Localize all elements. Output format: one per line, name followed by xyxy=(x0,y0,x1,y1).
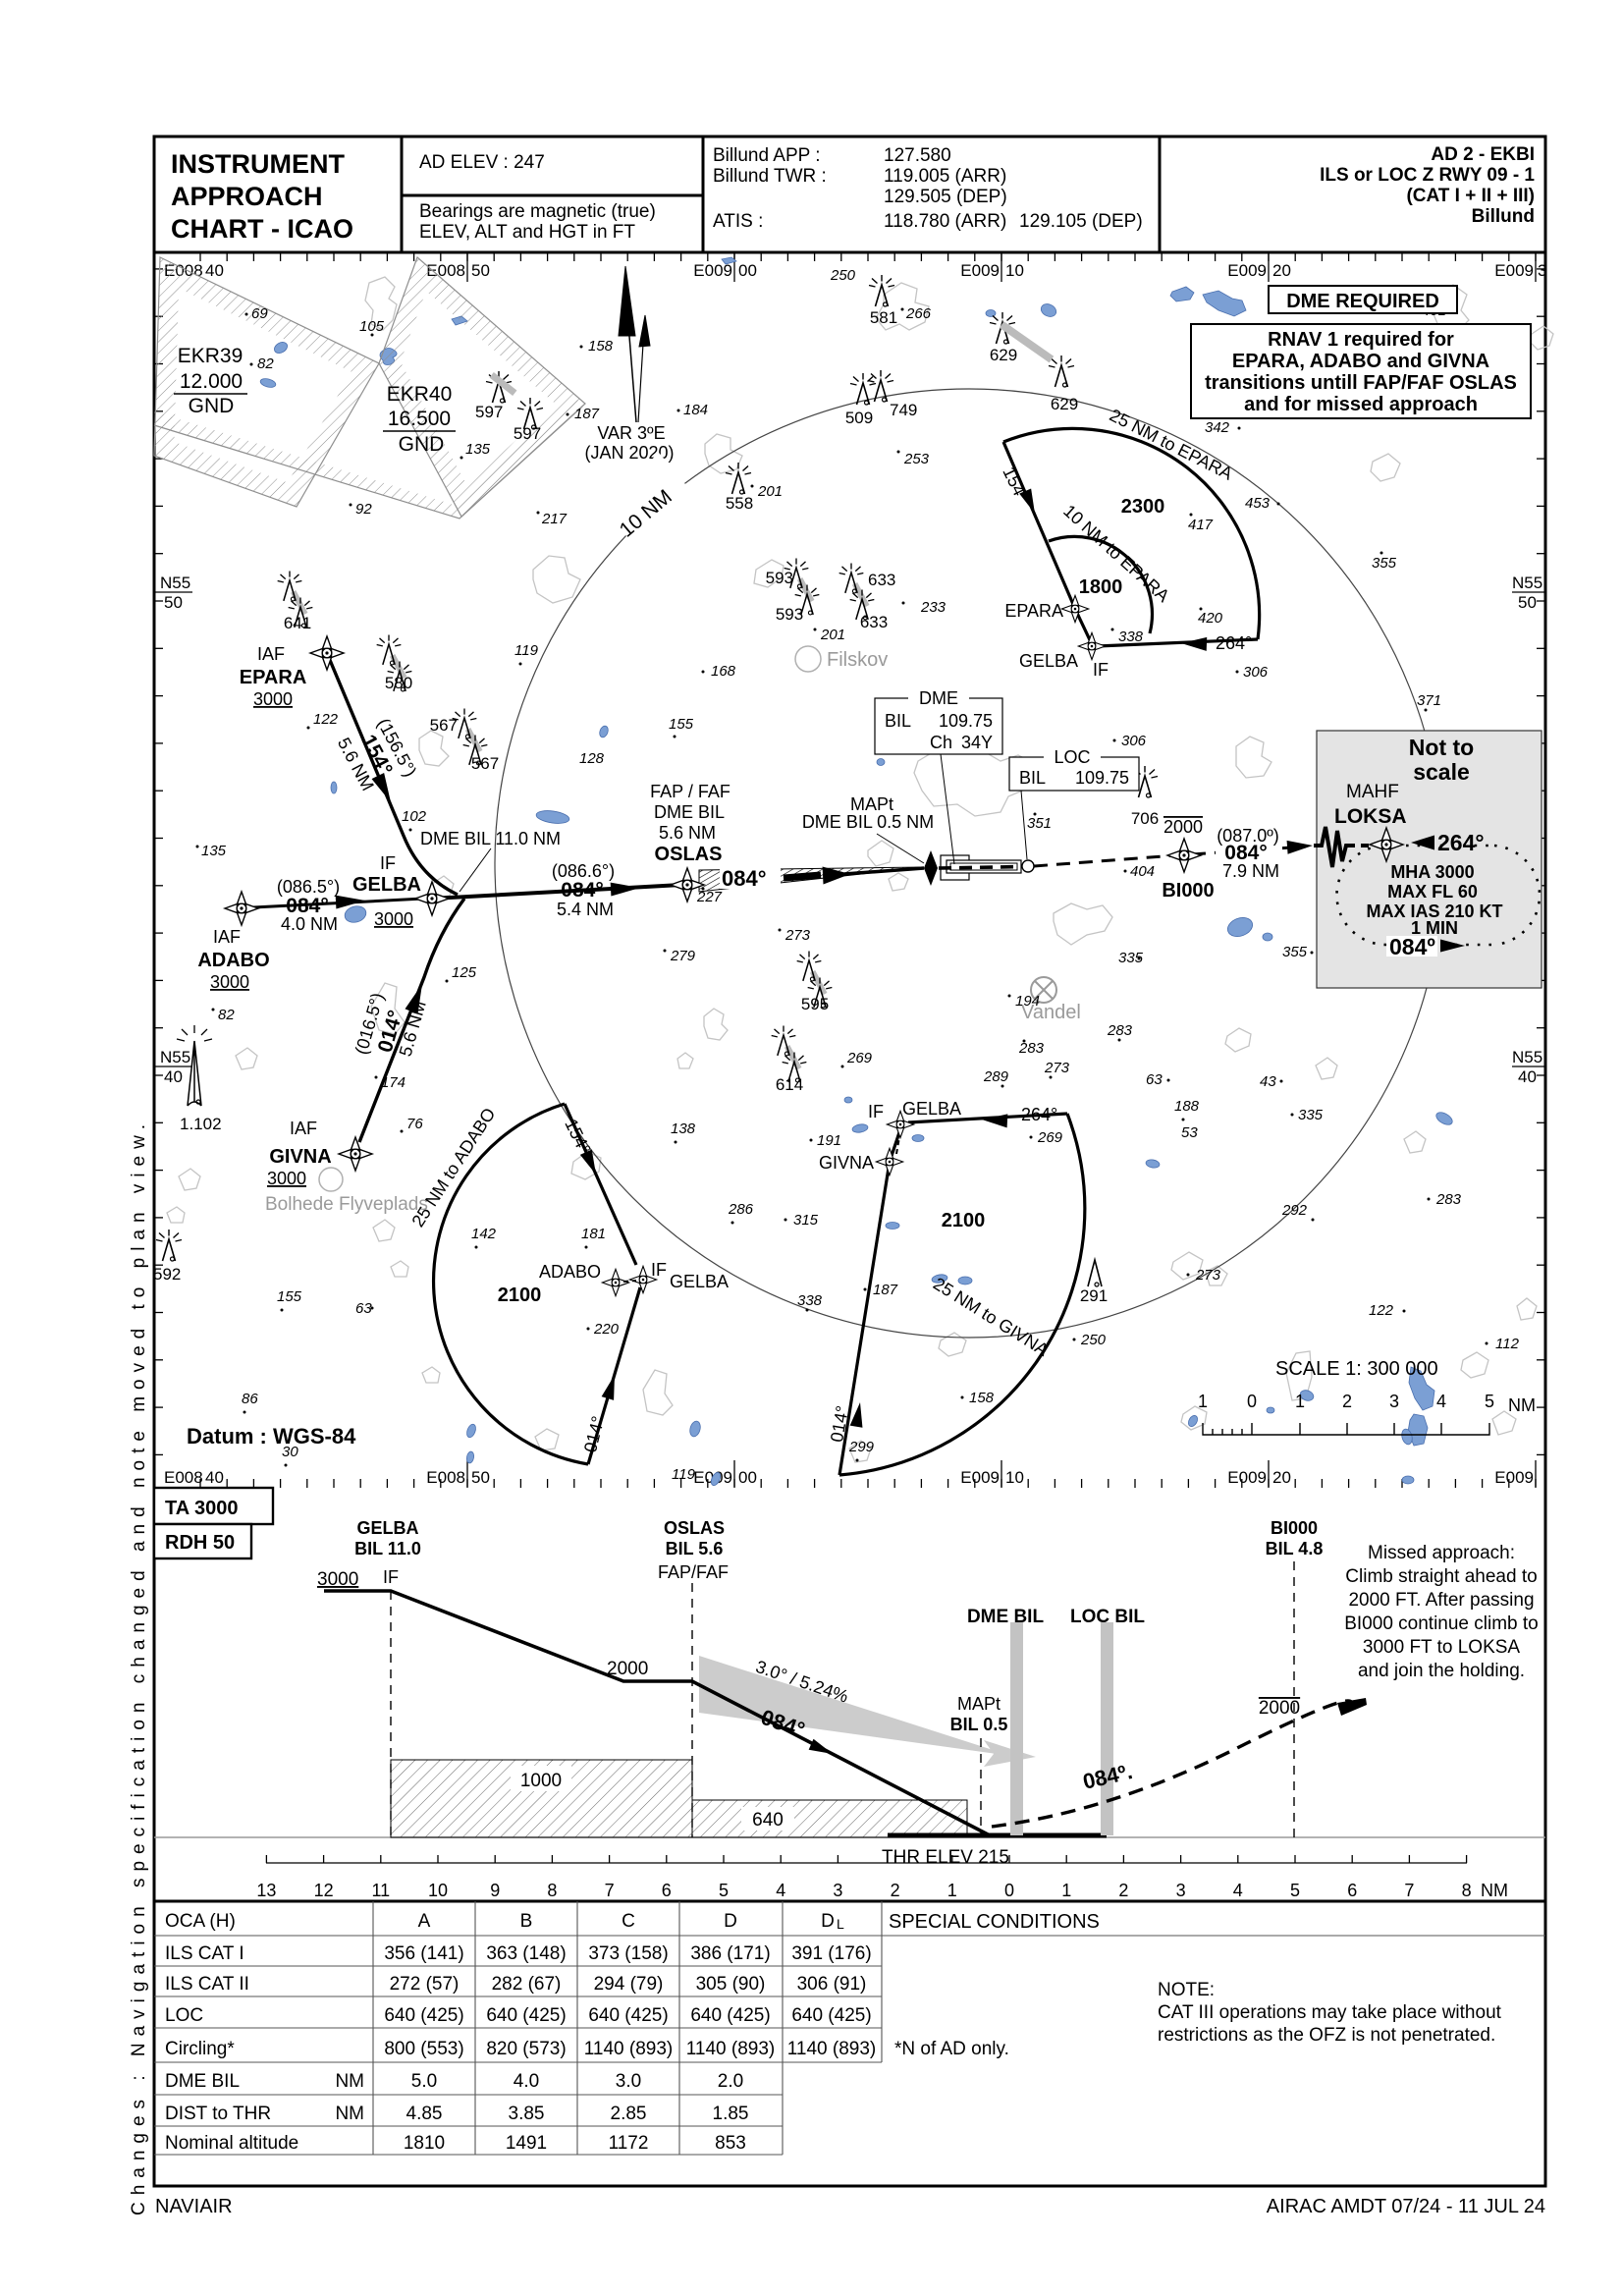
svg-text:69: 69 xyxy=(251,305,268,322)
svg-text:11: 11 xyxy=(371,1881,390,1900)
svg-text:2000: 2000 xyxy=(1163,817,1203,837)
svg-text:N55: N55 xyxy=(1512,574,1542,592)
svg-text:853: 853 xyxy=(715,2133,746,2154)
svg-text:43: 43 xyxy=(1260,1073,1276,1090)
svg-text:NM: NM xyxy=(1508,1395,1536,1415)
svg-text:158: 158 xyxy=(588,338,614,355)
svg-text:273: 273 xyxy=(1195,1267,1221,1284)
svg-text:291: 291 xyxy=(1080,1286,1108,1305)
svg-text:E009: E009 xyxy=(960,1468,1000,1487)
svg-text:OSLAS: OSLAS xyxy=(655,844,723,865)
svg-text:1140 (893): 1140 (893) xyxy=(584,2039,674,2059)
svg-text:IF: IF xyxy=(1093,660,1109,680)
svg-text:BIL: BIL xyxy=(1019,768,1046,788)
svg-text:3000: 3000 xyxy=(253,689,293,709)
svg-text:OCA (H): OCA (H) xyxy=(165,1911,236,1932)
svg-text:DME BIL 0.5 NM: DME BIL 0.5 NM xyxy=(802,812,934,832)
svg-text:4: 4 xyxy=(776,1881,785,1900)
svg-text:084°: 084° xyxy=(561,879,603,902)
svg-text:420: 420 xyxy=(1198,610,1223,627)
svg-text:581: 581 xyxy=(870,308,897,327)
svg-text:Climb straight ahead to: Climb straight ahead to xyxy=(1345,1566,1537,1587)
svg-text:109.75: 109.75 xyxy=(1075,768,1129,788)
svg-text:292: 292 xyxy=(1281,1202,1308,1219)
svg-text:283: 283 xyxy=(1018,1040,1045,1057)
svg-text:6: 6 xyxy=(1347,1881,1357,1900)
svg-text:1: 1 xyxy=(1061,1881,1071,1900)
svg-text:10: 10 xyxy=(1005,1468,1024,1487)
svg-text:282 (67): 282 (67) xyxy=(492,1974,562,1995)
svg-text:338: 338 xyxy=(1118,629,1144,645)
svg-text:E009: E009 xyxy=(1227,261,1267,280)
svg-text:GELBA: GELBA xyxy=(670,1272,729,1291)
svg-text:142: 142 xyxy=(471,1226,497,1242)
svg-text:306: 306 xyxy=(1121,733,1147,749)
svg-text:GND: GND xyxy=(189,395,235,417)
svg-text:1.102: 1.102 xyxy=(180,1115,222,1133)
svg-text:0: 0 xyxy=(1247,1392,1257,1411)
svg-text:6: 6 xyxy=(662,1881,672,1900)
svg-text:112: 112 xyxy=(1495,1336,1520,1352)
svg-text:scale: scale xyxy=(1413,759,1470,785)
svg-text:315: 315 xyxy=(793,1212,819,1229)
svg-text:286: 286 xyxy=(728,1201,754,1218)
svg-text:Billund APP :: Billund APP : xyxy=(713,145,821,166)
svg-text:135: 135 xyxy=(465,441,491,458)
svg-text:1: 1 xyxy=(1198,1392,1208,1411)
svg-text:10: 10 xyxy=(1005,261,1024,280)
svg-text:LOC: LOC xyxy=(165,2005,203,2026)
svg-text:118.780 (ARR): 118.780 (ARR) xyxy=(884,211,1006,232)
svg-text:355: 355 xyxy=(1372,555,1397,572)
svg-text:800 (553): 800 (553) xyxy=(384,2039,463,2059)
svg-text:3: 3 xyxy=(1538,261,1546,280)
svg-text:BIL 0.5: BIL 0.5 xyxy=(950,1715,1008,1734)
svg-text:ILS CAT II: ILS CAT II xyxy=(165,1974,249,1995)
svg-text:THR ELEV 215: THR ELEV 215 xyxy=(882,1847,1009,1868)
svg-text:306 (91): 306 (91) xyxy=(797,1974,867,1995)
svg-text:1.85: 1.85 xyxy=(713,2104,749,2124)
svg-text:269: 269 xyxy=(1037,1129,1063,1146)
svg-text:5.4 NM: 5.4 NM xyxy=(557,900,614,919)
svg-text:APPROACH: APPROACH xyxy=(171,182,323,211)
svg-text:084°: 084° xyxy=(722,866,767,891)
svg-text:86: 86 xyxy=(242,1391,258,1407)
svg-text:102: 102 xyxy=(402,808,427,825)
svg-text:109.75: 109.75 xyxy=(939,711,993,731)
svg-text:264°: 264° xyxy=(1021,1105,1057,1124)
svg-text:BIL: BIL xyxy=(885,711,911,731)
svg-text:40: 40 xyxy=(1518,1067,1537,1086)
svg-text:50: 50 xyxy=(1518,593,1537,612)
svg-text:Datum : WGS-84: Datum : WGS-84 xyxy=(187,1424,356,1449)
svg-text:1800: 1800 xyxy=(1079,576,1123,598)
svg-text:1172: 1172 xyxy=(609,2133,649,2154)
svg-text:2: 2 xyxy=(891,1881,900,1900)
svg-text:597: 597 xyxy=(514,424,541,443)
svg-text:L: L xyxy=(837,1916,844,1932)
svg-text:FAP/FAF: FAP/FAF xyxy=(658,1562,729,1582)
svg-text:614: 614 xyxy=(776,1075,803,1094)
svg-text:640 (425): 640 (425) xyxy=(690,2005,770,2026)
svg-text:264°: 264° xyxy=(1437,830,1485,855)
svg-text:158: 158 xyxy=(969,1390,995,1406)
svg-text:50: 50 xyxy=(471,1468,490,1487)
svg-text:E008: E008 xyxy=(426,1468,465,1487)
svg-text:335: 335 xyxy=(1298,1107,1324,1123)
svg-text:50: 50 xyxy=(164,593,183,612)
svg-text:3.85: 3.85 xyxy=(509,2104,545,2124)
svg-text:GIVNA: GIVNA xyxy=(819,1153,874,1173)
svg-text:122: 122 xyxy=(313,711,339,728)
svg-text:34Y: 34Y xyxy=(961,733,993,752)
svg-text:SPECIAL CONDITIONS: SPECIAL CONDITIONS xyxy=(889,1911,1100,1933)
svg-text:LOKSA: LOKSA xyxy=(1334,805,1407,828)
svg-text:ADABO: ADABO xyxy=(197,950,269,971)
svg-text:279: 279 xyxy=(670,948,696,964)
svg-text:BI000: BI000 xyxy=(1271,1518,1318,1538)
svg-text:9: 9 xyxy=(490,1881,500,1900)
svg-text:12.000: 12.000 xyxy=(180,370,243,393)
svg-text:217: 217 xyxy=(541,511,568,527)
svg-text:13: 13 xyxy=(256,1881,276,1900)
svg-text:ILS CAT I: ILS CAT I xyxy=(165,1943,244,1964)
svg-text:GND: GND xyxy=(399,433,445,456)
svg-text:187: 187 xyxy=(574,406,600,422)
svg-text:181: 181 xyxy=(581,1226,606,1242)
svg-text:640 (425): 640 (425) xyxy=(588,2005,668,2026)
svg-text:Filskov: Filskov xyxy=(827,649,888,671)
svg-text:289: 289 xyxy=(983,1068,1009,1085)
svg-text:8: 8 xyxy=(1462,1881,1472,1900)
svg-text:Not to: Not to xyxy=(1409,735,1474,760)
svg-text:595: 595 xyxy=(801,995,829,1013)
svg-text:273: 273 xyxy=(1044,1060,1070,1076)
svg-text:0: 0 xyxy=(1004,1881,1014,1900)
svg-text:2000 FT. After passing: 2000 FT. After passing xyxy=(1348,1590,1534,1611)
svg-text:453: 453 xyxy=(1245,495,1271,512)
svg-text:125: 125 xyxy=(452,964,477,981)
svg-text:DME REQUIRED: DME REQUIRED xyxy=(1286,291,1439,312)
svg-text:629: 629 xyxy=(1051,395,1078,413)
svg-text:DME BIL: DME BIL xyxy=(654,802,725,822)
svg-text:20: 20 xyxy=(1272,261,1291,280)
svg-text:373 (158): 373 (158) xyxy=(588,1943,668,1964)
svg-text:233: 233 xyxy=(920,599,947,616)
svg-text:2100: 2100 xyxy=(498,1285,542,1306)
svg-text:CAT III operations may take pl: CAT III operations may take place withou… xyxy=(1158,2002,1502,2023)
svg-text:IAF: IAF xyxy=(257,644,285,664)
svg-text:E009: E009 xyxy=(1494,261,1534,280)
svg-text:LOC: LOC xyxy=(1054,747,1090,767)
svg-text:273: 273 xyxy=(784,927,811,944)
svg-text:1000: 1000 xyxy=(520,1771,562,1791)
svg-text:transitions untill FAP/FAF OSL: transitions untill FAP/FAF OSLAS xyxy=(1205,372,1517,394)
svg-text:TA 3000: TA 3000 xyxy=(165,1498,238,1519)
svg-text:40: 40 xyxy=(205,1468,224,1487)
svg-text:BIL 4.8: BIL 4.8 xyxy=(1266,1539,1324,1558)
svg-text:IF: IF xyxy=(383,1567,399,1587)
svg-text:355: 355 xyxy=(1282,944,1308,960)
svg-text:417: 417 xyxy=(1188,517,1214,533)
svg-text:191: 191 xyxy=(817,1132,841,1149)
svg-text:N55: N55 xyxy=(160,574,190,592)
svg-text:305 (90): 305 (90) xyxy=(696,1974,766,1995)
svg-text:OSLAS: OSLAS xyxy=(664,1518,725,1538)
svg-text:BIL 5.6: BIL 5.6 xyxy=(666,1539,724,1558)
svg-text:SCALE 1: 300 000: SCALE 1: 300 000 xyxy=(1275,1358,1438,1380)
svg-text:Bearings are magnetic (true): Bearings are magnetic (true) xyxy=(419,201,656,222)
svg-text:269: 269 xyxy=(846,1050,873,1066)
svg-text:NM: NM xyxy=(335,2071,364,2092)
svg-text:640 (425): 640 (425) xyxy=(486,2005,566,2026)
svg-text:(086.6°): (086.6°) xyxy=(552,861,615,881)
svg-text:168: 168 xyxy=(711,663,736,680)
svg-text:509: 509 xyxy=(845,409,873,427)
svg-text:E009: E009 xyxy=(960,261,1000,280)
svg-text:1: 1 xyxy=(1295,1392,1305,1411)
svg-text:404: 404 xyxy=(1130,863,1155,880)
svg-text:184: 184 xyxy=(683,402,708,418)
svg-text:371: 371 xyxy=(1417,692,1441,709)
svg-text:ADABO: ADABO xyxy=(539,1262,601,1282)
svg-text:194: 194 xyxy=(1015,993,1040,1010)
svg-text:1491: 1491 xyxy=(506,2133,547,2154)
svg-text:BI000 continue climb to: BI000 continue climb to xyxy=(1344,1613,1539,1634)
svg-text:3.0: 3.0 xyxy=(616,2071,641,2092)
svg-text:567: 567 xyxy=(471,754,499,773)
svg-text:640 (425): 640 (425) xyxy=(384,2005,463,2026)
svg-text:283: 283 xyxy=(1435,1191,1462,1208)
svg-text:220: 220 xyxy=(593,1321,620,1338)
svg-text:283: 283 xyxy=(1107,1022,1133,1039)
svg-text:201: 201 xyxy=(757,483,783,500)
svg-text:597: 597 xyxy=(475,403,503,421)
svg-text:63: 63 xyxy=(1146,1071,1163,1088)
svg-text:3000: 3000 xyxy=(374,909,413,929)
svg-text:N55: N55 xyxy=(1512,1048,1542,1066)
svg-text:and join the holding.: and join the holding. xyxy=(1358,1661,1525,1681)
svg-text:AD ELEV : 247: AD ELEV : 247 xyxy=(419,152,545,173)
svg-text:D: D xyxy=(724,1911,737,1932)
svg-text:1810: 1810 xyxy=(404,2133,445,2154)
svg-text:4: 4 xyxy=(1233,1881,1243,1900)
svg-text:1140 (893): 1140 (893) xyxy=(787,2039,877,2059)
svg-text:567: 567 xyxy=(430,716,458,735)
svg-text:LOC BIL: LOC BIL xyxy=(1070,1607,1145,1627)
svg-text:7.9 NM: 7.9 NM xyxy=(1222,861,1279,881)
svg-text:4: 4 xyxy=(1436,1392,1446,1411)
svg-text:4.0 NM: 4.0 NM xyxy=(281,914,338,934)
svg-text:DIST to THR: DIST to THR xyxy=(165,2104,271,2124)
svg-text:ILS or LOC Z RWY 09 - 1: ILS or LOC Z RWY 09 - 1 xyxy=(1320,165,1535,186)
svg-text:3: 3 xyxy=(1176,1881,1186,1900)
svg-text:MHA 3000: MHA 3000 xyxy=(1390,862,1474,882)
svg-text:558: 558 xyxy=(726,494,753,513)
svg-text:MAHF: MAHF xyxy=(1346,782,1399,802)
svg-text:5.0: 5.0 xyxy=(411,2071,437,2092)
svg-text:593: 593 xyxy=(766,569,793,587)
svg-text:188: 188 xyxy=(1174,1098,1200,1115)
svg-text:NM: NM xyxy=(1481,1881,1508,1900)
svg-text:B: B xyxy=(520,1911,533,1932)
svg-text:4.85: 4.85 xyxy=(406,2104,443,2124)
svg-text:2000: 2000 xyxy=(1259,1698,1300,1719)
svg-text:128: 128 xyxy=(579,750,605,767)
svg-text:NOTE:: NOTE: xyxy=(1158,1980,1215,2000)
svg-text:63: 63 xyxy=(355,1300,372,1317)
svg-text:592: 592 xyxy=(153,1265,181,1284)
svg-text:INSTRUMENT: INSTRUMENT xyxy=(171,149,345,179)
svg-text:3: 3 xyxy=(1389,1392,1399,1411)
svg-text:restrictions as the OFZ is not: restrictions as the OFZ is not penetrate… xyxy=(1158,2025,1495,2046)
svg-text:2: 2 xyxy=(1118,1881,1128,1900)
svg-text:2300: 2300 xyxy=(1121,496,1165,518)
svg-text:5: 5 xyxy=(1485,1392,1494,1411)
svg-text:53: 53 xyxy=(1181,1124,1198,1141)
svg-text:16.500: 16.500 xyxy=(388,408,451,430)
svg-text:D: D xyxy=(821,1911,835,1932)
svg-text:Ch: Ch xyxy=(930,733,952,752)
svg-text:2.0: 2.0 xyxy=(718,2071,743,2092)
svg-text:2000: 2000 xyxy=(607,1659,648,1679)
svg-text:20: 20 xyxy=(1272,1468,1291,1487)
svg-text:Bolhede Flyveplads: Bolhede Flyveplads xyxy=(265,1194,428,1215)
svg-text:76: 76 xyxy=(406,1116,423,1132)
svg-text:127.580: 127.580 xyxy=(884,145,951,166)
svg-text:3000: 3000 xyxy=(267,1169,306,1188)
svg-text:IAF: IAF xyxy=(213,927,241,947)
svg-text:ELEV, ALT and HGT in FT: ELEV, ALT and HGT in FT xyxy=(419,222,635,243)
svg-text:Changes : Navigation specifica: Changes : Navigation specification chang… xyxy=(129,1118,149,2215)
svg-text:(CAT I + II + III): (CAT I + II + III) xyxy=(1406,186,1535,206)
svg-text:EPARA, ADABO and GIVNA: EPARA, ADABO and GIVNA xyxy=(1232,351,1489,372)
svg-text:084º: 084º xyxy=(1389,934,1435,959)
svg-text:IF: IF xyxy=(651,1260,667,1280)
svg-text:E009: E009 xyxy=(1494,1468,1534,1487)
svg-text:Missed approach:: Missed approach: xyxy=(1368,1543,1515,1563)
svg-text:Nominal altitude: Nominal altitude xyxy=(165,2133,298,2154)
svg-text:NAVIAIR: NAVIAIR xyxy=(155,2196,233,2217)
svg-text:BIL 11.0: BIL 11.0 xyxy=(354,1539,421,1558)
svg-text:3: 3 xyxy=(833,1881,842,1900)
svg-text:RDH 50: RDH 50 xyxy=(165,1532,235,1554)
svg-text:GELBA: GELBA xyxy=(352,874,421,896)
svg-text:1: 1 xyxy=(947,1881,957,1900)
svg-text:2.85: 2.85 xyxy=(611,2104,647,2124)
svg-text:MAPt: MAPt xyxy=(850,794,893,814)
svg-text:391 (176): 391 (176) xyxy=(791,1943,871,1964)
svg-text:135: 135 xyxy=(201,843,227,859)
svg-text:A: A xyxy=(418,1911,431,1932)
svg-text:266: 266 xyxy=(905,305,932,322)
svg-text:633: 633 xyxy=(860,613,888,631)
svg-text:250: 250 xyxy=(1080,1332,1107,1348)
svg-text:GELBA: GELBA xyxy=(357,1518,419,1538)
svg-text:ATIS :: ATIS : xyxy=(713,211,763,232)
svg-text:363 (148): 363 (148) xyxy=(486,1943,566,1964)
svg-text:NM: NM xyxy=(335,2104,364,2124)
svg-text:386 (171): 386 (171) xyxy=(690,1943,770,1964)
svg-text:RNAV 1 required for: RNAV 1 required for xyxy=(1268,329,1454,351)
svg-text:580: 580 xyxy=(385,674,412,692)
svg-text:201: 201 xyxy=(820,627,845,643)
svg-text:82: 82 xyxy=(257,355,274,372)
svg-text:40: 40 xyxy=(164,1067,183,1086)
svg-text:264°: 264° xyxy=(1216,633,1252,653)
svg-text:DME BIL 11.0 NM: DME BIL 11.0 NM xyxy=(420,829,561,848)
svg-text:82: 82 xyxy=(218,1007,235,1023)
svg-text:DME: DME xyxy=(919,688,958,708)
svg-text:294 (79): 294 (79) xyxy=(594,1974,664,1995)
svg-text:MAPt: MAPt xyxy=(957,1694,1001,1714)
svg-text:Circling*: Circling* xyxy=(165,2039,235,2059)
svg-text:(086.5°): (086.5°) xyxy=(277,877,340,897)
svg-text:E008: E008 xyxy=(164,1468,203,1487)
svg-text:299: 299 xyxy=(848,1439,875,1455)
svg-text:DME BIL: DME BIL xyxy=(967,1607,1045,1627)
svg-text:1140 (893): 1140 (893) xyxy=(686,2039,776,2059)
svg-text:92: 92 xyxy=(355,501,372,518)
svg-text:5: 5 xyxy=(719,1881,729,1900)
svg-text:155: 155 xyxy=(669,716,694,733)
svg-text:356 (141): 356 (141) xyxy=(384,1943,463,1964)
svg-text:138: 138 xyxy=(671,1121,696,1137)
svg-text:IF: IF xyxy=(868,1102,884,1121)
svg-text:749: 749 xyxy=(890,401,917,419)
svg-text:105: 105 xyxy=(359,318,385,335)
svg-text:MAX FL 60: MAX FL 60 xyxy=(1387,882,1478,902)
svg-text:351: 351 xyxy=(1027,815,1052,832)
svg-text:GELBA: GELBA xyxy=(902,1099,961,1119)
svg-text:E009: E009 xyxy=(1227,1468,1267,1487)
svg-text:640: 640 xyxy=(752,1810,784,1831)
svg-text:AIRAC AMDT 07/24 - 11 JUL 24: AIRAC AMDT 07/24 - 11 JUL 24 xyxy=(1267,2196,1545,2217)
svg-text:253: 253 xyxy=(903,451,930,467)
svg-text:187: 187 xyxy=(873,1282,898,1298)
svg-text:250: 250 xyxy=(830,267,856,284)
svg-text:3000: 3000 xyxy=(317,1569,358,1590)
svg-text:BI000: BI000 xyxy=(1162,880,1214,902)
svg-text:306: 306 xyxy=(1243,664,1269,681)
svg-text:VAR 3ºE: VAR 3ºE xyxy=(597,423,665,443)
svg-text:*N of AD only.: *N of AD only. xyxy=(894,2039,1009,2059)
svg-text:IAF: IAF xyxy=(290,1119,317,1138)
svg-text:593: 593 xyxy=(776,605,803,624)
svg-text:7: 7 xyxy=(1404,1881,1414,1900)
svg-text:12: 12 xyxy=(314,1881,334,1900)
svg-text:EKR40: EKR40 xyxy=(387,383,453,406)
svg-text:272 (57): 272 (57) xyxy=(390,1974,460,1995)
svg-text:820 (573): 820 (573) xyxy=(486,2039,566,2059)
svg-text:5: 5 xyxy=(1290,1881,1300,1900)
svg-text:640 (425): 640 (425) xyxy=(791,2005,871,2026)
svg-text:2: 2 xyxy=(1342,1392,1352,1411)
svg-text:8: 8 xyxy=(547,1881,557,1900)
svg-text:GELBA: GELBA xyxy=(1019,651,1078,671)
svg-text:CHART - ICAO: CHART - ICAO xyxy=(171,214,353,244)
svg-text:119.005 (ARR): 119.005 (ARR) xyxy=(884,166,1006,187)
svg-text:Billund TWR :: Billund TWR : xyxy=(713,166,827,187)
svg-text:342: 342 xyxy=(1205,419,1230,436)
svg-text:and for missed approach: and for missed approach xyxy=(1244,394,1478,415)
svg-text:706: 706 xyxy=(1131,809,1159,828)
svg-text:129.505 (DEP): 129.505 (DEP) xyxy=(884,187,1007,207)
svg-text:122: 122 xyxy=(1369,1302,1394,1319)
svg-text:633: 633 xyxy=(868,571,895,589)
svg-text:4.0: 4.0 xyxy=(514,2071,539,2092)
svg-text:IF: IF xyxy=(380,853,396,873)
